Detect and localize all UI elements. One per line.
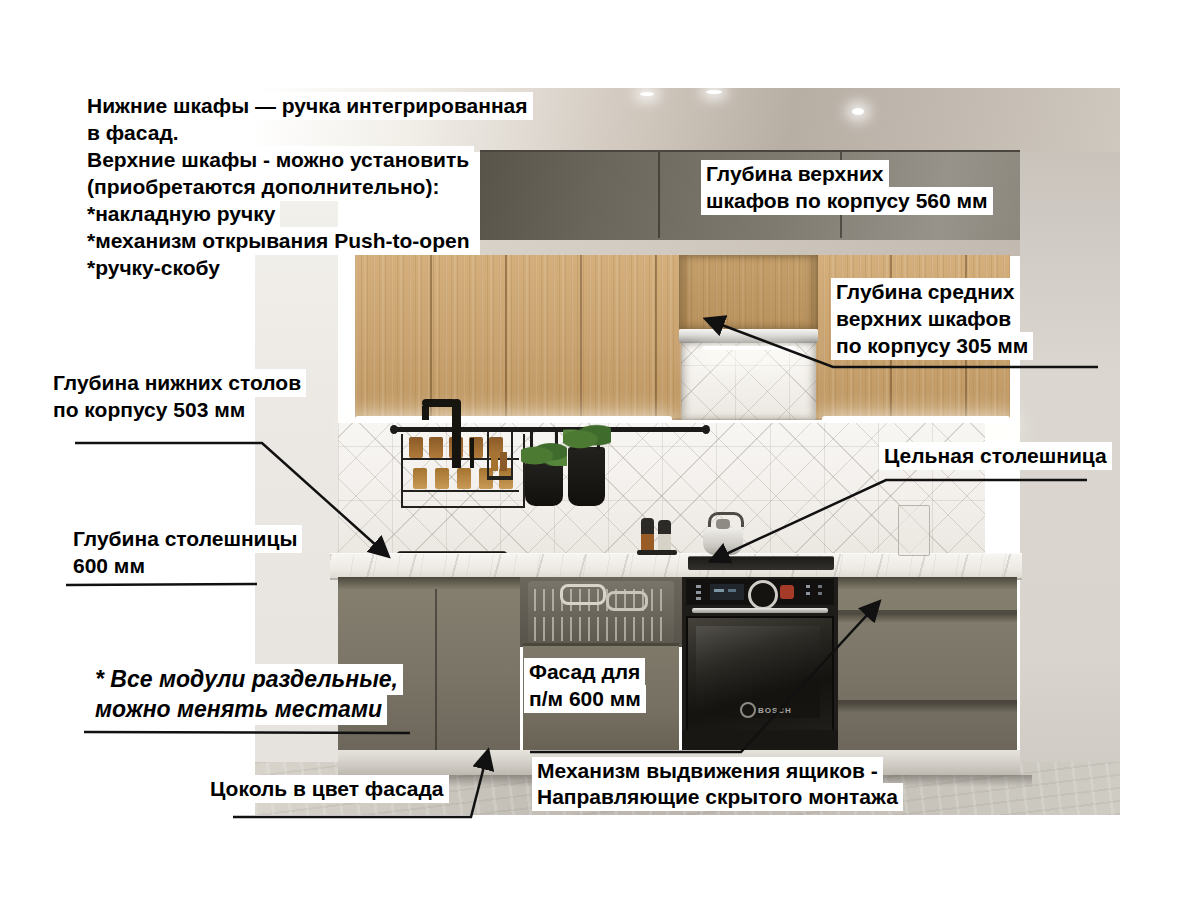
oven-knob (748, 580, 778, 610)
drawer-mechanism-text: Механизм выдвижения ящиков - Направляющи… (532, 757, 903, 811)
grinder-stand (637, 550, 677, 555)
oven: BOSCH (682, 577, 838, 750)
rack-handle (560, 584, 606, 605)
base-cabinet-drawers (838, 577, 1017, 750)
rail-end-cap (702, 425, 710, 434)
herb-pot (568, 447, 605, 506)
kettle-handle (708, 512, 744, 527)
modules-note-label: * Все модули раздельные, можно менять ме… (90, 664, 403, 724)
annotated-kitchen-diagram: BOSCH Нижние шкафы — ручка интегрированн… (0, 0, 1201, 900)
bosch-logo-icon (740, 702, 756, 718)
countertop (330, 553, 1022, 580)
range-hood (679, 329, 818, 343)
faucet-sprayer (470, 438, 474, 468)
base-cabinet-depth-text: Глубина нижних столов по корпусу 503 мм (48, 369, 306, 424)
hanging-spice-rack (487, 432, 513, 480)
oven-brand-label: BOSCH (758, 706, 792, 715)
hood-light (702, 346, 796, 350)
oven-display (710, 584, 744, 600)
faucet-spout-tip (422, 406, 429, 420)
countertop-depth-text: Глубина столешницы 600 мм (68, 525, 302, 580)
underline-countertop-depth (66, 584, 257, 585)
integrated-handle-groove (838, 577, 1017, 590)
hood-backsplash (681, 343, 816, 420)
spice-grinder (641, 518, 654, 554)
spice-jar (435, 468, 449, 489)
countertop-depth-label: Глубина столешницы 600 мм (68, 525, 302, 579)
dishwasher-rack (534, 617, 668, 641)
dishwasher-facade-label: Фасад для п/м 600 мм (524, 658, 646, 712)
info-block-label: Нижние шкафы — ручка интегрированная в ф… (82, 92, 602, 281)
spice-grinder (658, 520, 671, 554)
oven-door: BOSCH (686, 616, 834, 732)
spice-jar (500, 452, 507, 471)
solid-countertop-label: Цельная столешница (879, 442, 1112, 469)
spice-jar (457, 468, 471, 489)
cabinet-door-gap (658, 152, 660, 238)
ceiling-spotlight-icon (852, 108, 864, 115)
middle-upper-depth-text: Глубина средних верхних шкафов по корпус… (831, 278, 1033, 360)
under-cabinet-light (355, 416, 672, 423)
herb-plant (521, 440, 567, 466)
middle-upper-depth-label: Глубина средних верхних шкафов по корпус… (831, 278, 1033, 359)
oak-door-gap (655, 255, 657, 418)
solid-countertop-text: Цельная столешница (879, 442, 1112, 470)
oven-handle (692, 608, 828, 613)
glass-carafe (898, 505, 930, 556)
ceiling-spotlight-icon (706, 90, 722, 94)
door-gap (435, 589, 437, 750)
under-cabinet-light (822, 416, 1010, 423)
hood-cabinet (679, 255, 818, 329)
rack-handle (606, 591, 648, 611)
dishwasher-facade-text: Фасад для п/м 600 мм (524, 658, 646, 713)
faucet (452, 399, 461, 468)
cooktop (688, 556, 834, 570)
herb-pot (525, 462, 563, 506)
modules-note-text: * Все модули раздельные, можно менять ме… (90, 664, 403, 725)
rail-end-cap (390, 425, 398, 434)
spice-jar (429, 437, 443, 458)
info-block-text: Нижние шкафы — ручка интегрированная в ф… (82, 92, 533, 282)
spice-jar (409, 437, 423, 458)
wall-rail (393, 427, 708, 432)
integrated-handle-groove (338, 577, 520, 590)
herb-plant (563, 424, 611, 452)
oven-control-panel (686, 579, 834, 605)
integrated-handle-groove (838, 613, 1017, 623)
integrated-handle-groove (838, 703, 1017, 713)
upper-cabinet-depth-text: Глубина верхних шкафов по корпусу 560 мм (701, 160, 993, 215)
oven-red-accent (780, 585, 794, 599)
base-cabinet-depth-label: Глубина нижних столов по корпусу 503 мм (48, 369, 306, 423)
spice-jar (413, 468, 427, 489)
spice-jar (491, 452, 498, 471)
drawer-mechanism-label: Механизм выдвижения ящиков - Направляющи… (532, 758, 903, 810)
plinth-label: Цоколь в цвет фасада (205, 775, 449, 802)
ceiling-spotlight-icon (640, 92, 654, 96)
kettle (703, 528, 743, 555)
upper-cabinet-depth-label: Глубина верхних шкафов по корпусу 560 мм (701, 160, 993, 214)
dishwasher-open (520, 577, 682, 647)
plinth-text: Цоколь в цвет фасада (205, 775, 449, 803)
